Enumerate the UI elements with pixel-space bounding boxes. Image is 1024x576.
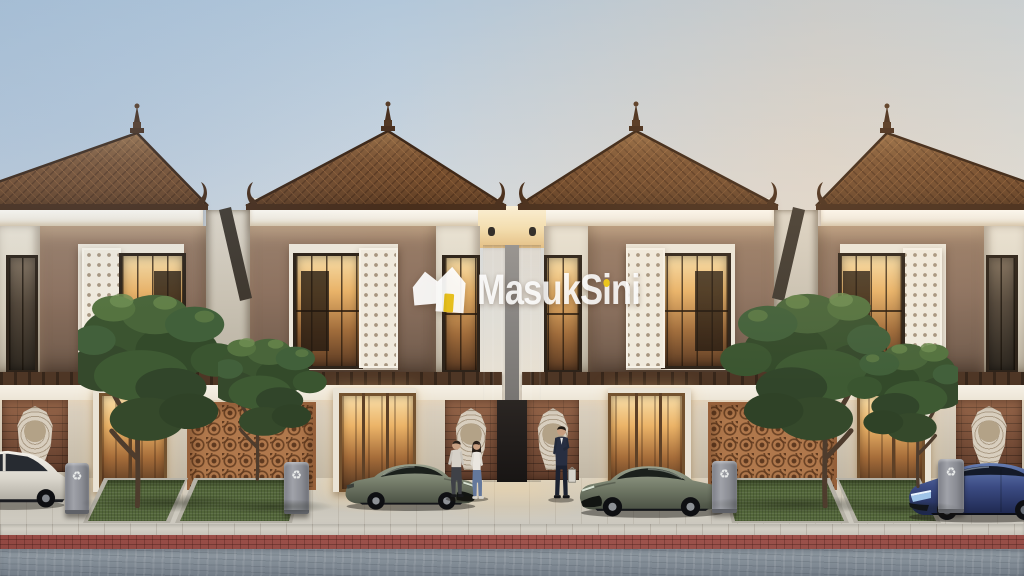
- sidewalk: [0, 524, 1024, 535]
- architectural-rendering: ♻ ♻ ♻ ♻: [0, 0, 1024, 576]
- house-roof: [518, 102, 778, 211]
- brand-text-mid: n: [611, 266, 631, 314]
- house-roof: [816, 104, 1024, 211]
- center-passage: [512, 400, 527, 482]
- tree: [838, 312, 958, 510]
- brand-last-i: i: [631, 266, 640, 314]
- red-paver-band: [0, 535, 1024, 549]
- cobblestone-street: [0, 549, 1024, 576]
- roof-structures: [0, 0, 512, 232]
- house-roof: [246, 102, 506, 211]
- tree: [218, 300, 336, 510]
- side-volume: [984, 226, 1024, 372]
- narrow-window: [6, 255, 38, 373]
- white-hatchback-car: [0, 444, 74, 510]
- roof-structures: [512, 0, 1024, 232]
- brand-accent-i: i: [602, 266, 611, 314]
- watermark-text: MasukSini: [477, 258, 640, 322]
- house-roof: [0, 104, 208, 211]
- businessman: [548, 424, 576, 503]
- side-volume: [0, 226, 40, 372]
- house-logo-icon: [410, 258, 468, 322]
- walking-couple: [443, 438, 491, 502]
- white-lattice-panel: [359, 248, 398, 368]
- brand-text-pre: MasukS: [477, 266, 602, 314]
- narrow-window: [986, 255, 1018, 373]
- center-passage: [497, 400, 512, 482]
- masuksini-watermark: MasukSini: [410, 258, 681, 322]
